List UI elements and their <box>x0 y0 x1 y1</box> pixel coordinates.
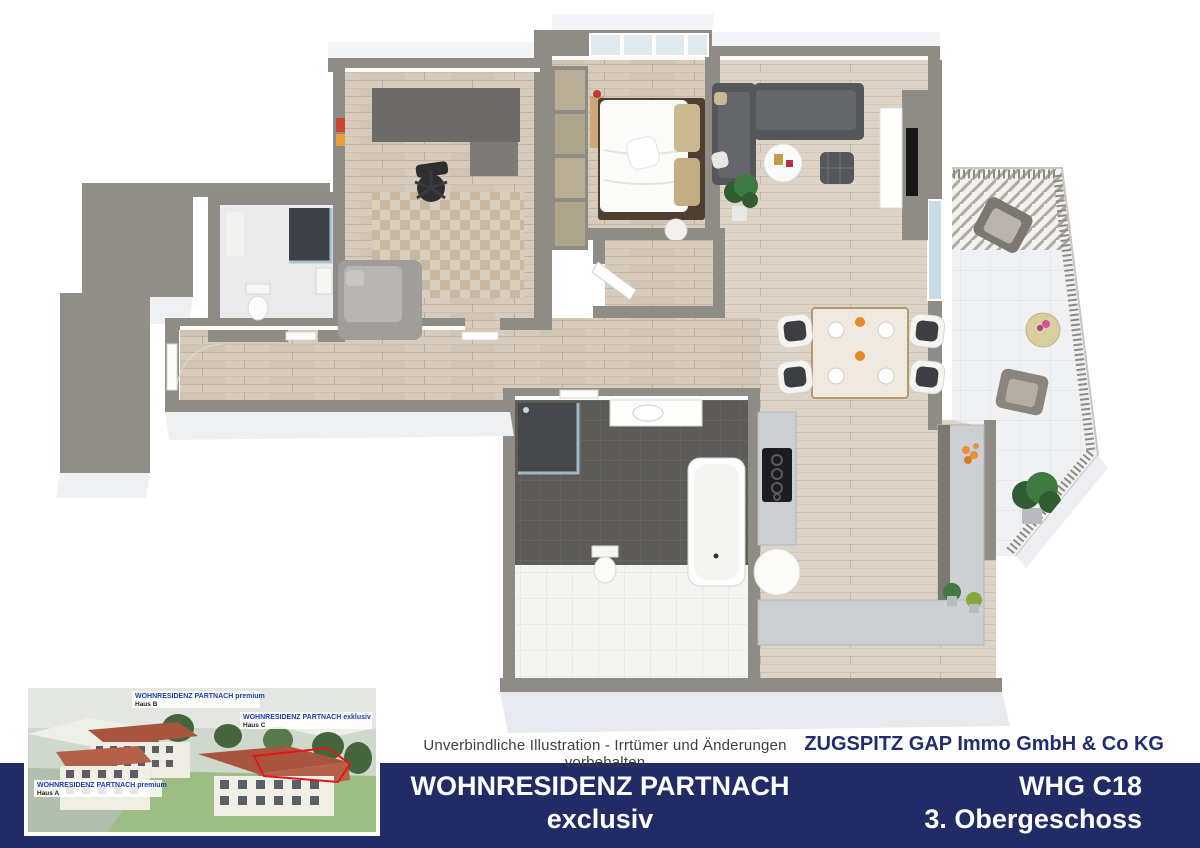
unit-number: WHG C18 <box>924 770 1142 803</box>
guest-wc-door-leaf <box>286 332 316 340</box>
label-haus-a-name: Haus A <box>37 790 59 797</box>
floor-plan-illustration <box>0 0 1200 760</box>
shower <box>518 403 578 473</box>
hall-wall-face <box>165 412 514 440</box>
disclaimer-text: Unverbindliche Illustration - Irrtümer u… <box>405 737 805 771</box>
throw-pillow <box>714 92 727 105</box>
daybed <box>338 260 422 340</box>
washbasin <box>633 405 663 421</box>
label-haus-b-title: WOHNRESIDENZ PARTNACH premium <box>135 693 265 700</box>
label-haus-c-title: WOHNRESIDENZ PARTNACH exklusiv <box>243 714 371 721</box>
guest-toilet <box>246 284 270 320</box>
coffee-table <box>764 144 802 182</box>
site-overview-inset: WOHNRESIDENZ PARTNACH premium Haus B WOH… <box>24 684 380 836</box>
label-haus-c-name: Haus C <box>243 722 266 729</box>
desk <box>372 88 520 142</box>
toilet <box>592 546 618 583</box>
bedroom-window <box>590 34 708 56</box>
tv-lowboard <box>880 108 902 208</box>
kitchen-counter-bottom <box>758 600 984 645</box>
unit-floor: 3. Obergeschoss <box>924 803 1142 836</box>
label-haus-a-title: WOHNRESIDENZ PARTNACH premium <box>37 782 167 789</box>
brochure-page: { "footer": { "disclaimer": "Unverbindli… <box>0 0 1200 848</box>
entry-door-leaf <box>167 344 177 390</box>
wardrobe-shelves <box>552 66 588 250</box>
label-haus-b-name: Haus B <box>135 701 158 708</box>
storage-room <box>592 240 713 306</box>
bottom-wall-face <box>500 692 1010 733</box>
bathtub <box>688 458 745 586</box>
wall-artwork <box>336 118 345 146</box>
pillow <box>674 158 700 206</box>
desk-drawer-unit <box>470 142 518 176</box>
pitcher <box>855 317 865 327</box>
round-side-table <box>754 549 800 595</box>
guest-shelf <box>226 212 244 256</box>
pillow <box>674 104 700 152</box>
haus-a-building <box>56 746 152 810</box>
terrace-pouf <box>1026 313 1060 347</box>
bedroom <box>598 98 705 241</box>
unit-info-block: WHG C18 3. Obergeschoss <box>924 770 1142 836</box>
bathroom-door-leaf <box>560 390 598 398</box>
guest-shower <box>289 208 331 262</box>
guest-sink <box>316 268 332 294</box>
haus-c-building <box>198 746 350 816</box>
bedside-table <box>665 219 687 241</box>
pitcher <box>855 351 865 361</box>
study-door-leaf <box>462 332 498 340</box>
company-name: ZUGSPITZ GAP Immo GmbH & Co KG <box>804 733 1164 756</box>
terrace-door-glazing <box>928 200 942 300</box>
tv <box>906 128 918 196</box>
